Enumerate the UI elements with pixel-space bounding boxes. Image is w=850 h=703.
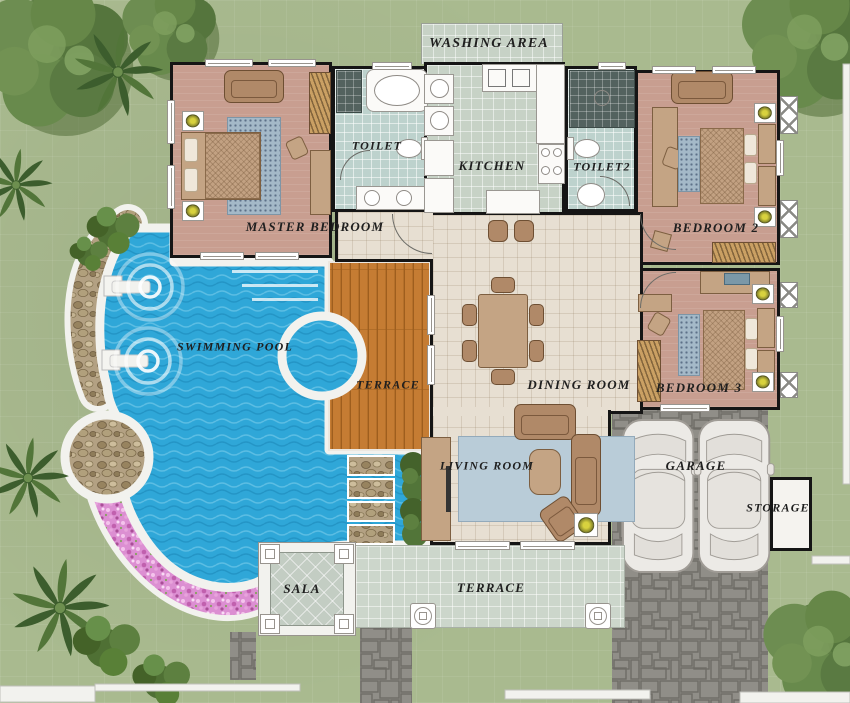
cabinet bbox=[424, 178, 454, 213]
sala-post bbox=[334, 544, 354, 564]
headboard-cabinet bbox=[758, 166, 776, 206]
label-bedroom2: BEDROOM 2 bbox=[673, 220, 759, 236]
wardrobe bbox=[309, 72, 331, 134]
bed-blanket bbox=[205, 133, 260, 199]
terrace-column bbox=[585, 603, 611, 629]
palm-tree bbox=[0, 148, 53, 221]
window bbox=[776, 316, 784, 352]
label-toilet: TOILET bbox=[352, 139, 402, 154]
pillow bbox=[744, 134, 757, 156]
wardrobe bbox=[712, 242, 776, 263]
dryer-drum bbox=[430, 111, 449, 130]
label-garage: GARAGE bbox=[666, 458, 727, 474]
label-sala: SALA bbox=[283, 581, 320, 597]
burner bbox=[553, 148, 562, 157]
label-master-bedroom: MASTER BEDROOM bbox=[246, 219, 385, 235]
dining-table bbox=[478, 294, 528, 368]
pillow bbox=[184, 138, 198, 162]
washer-drum bbox=[430, 79, 449, 98]
label-terrace-south: TERRACE bbox=[457, 580, 525, 596]
bed-bedroom2 bbox=[700, 128, 744, 204]
bathtub-basin bbox=[374, 75, 420, 106]
terrace-column bbox=[410, 603, 436, 629]
label-washing-area: WASHING AREA bbox=[429, 36, 549, 52]
dining-chair bbox=[529, 340, 544, 362]
label-storage: STORAGE bbox=[746, 501, 810, 516]
pillow bbox=[184, 168, 198, 192]
ac-unit bbox=[780, 282, 798, 308]
fridge bbox=[424, 140, 454, 176]
window bbox=[167, 100, 175, 144]
shower bbox=[336, 70, 362, 113]
kitchen-sink bbox=[488, 69, 506, 87]
toilet-bowl bbox=[574, 139, 600, 158]
window bbox=[427, 345, 435, 385]
floor-plan: WASHING AREA TOILET KITCHEN TOILET2 MAST… bbox=[0, 0, 850, 703]
laptop bbox=[724, 273, 750, 285]
bedroom-rug bbox=[678, 314, 700, 376]
car bbox=[694, 420, 774, 572]
window bbox=[255, 252, 299, 260]
pebble-patio bbox=[65, 415, 149, 499]
window bbox=[712, 66, 756, 74]
wall-lamp bbox=[752, 284, 774, 304]
burner bbox=[541, 148, 550, 157]
sofa bbox=[571, 434, 601, 516]
bedroom-rug bbox=[678, 136, 700, 192]
label-bedroom3: BEDROOM 3 bbox=[656, 380, 742, 396]
headboard-cabinet bbox=[757, 308, 775, 348]
dining-chair bbox=[462, 340, 477, 362]
window bbox=[427, 295, 435, 335]
window bbox=[598, 62, 626, 70]
window bbox=[167, 165, 175, 209]
kitchen-sink bbox=[512, 69, 530, 87]
sink-basin bbox=[364, 190, 380, 206]
window bbox=[268, 59, 316, 67]
window bbox=[520, 541, 575, 550]
bed-bedroom3 bbox=[703, 310, 745, 390]
sala-post bbox=[334, 614, 354, 634]
kitchen-island bbox=[486, 190, 540, 214]
shower-head bbox=[594, 90, 610, 106]
window bbox=[776, 140, 784, 176]
ac-unit bbox=[780, 200, 798, 238]
palm-tree bbox=[0, 437, 69, 519]
tree bbox=[763, 591, 850, 703]
window bbox=[652, 66, 696, 74]
spa-circle bbox=[282, 316, 362, 396]
sofa bbox=[224, 70, 284, 103]
wall-lamp bbox=[574, 513, 598, 537]
window bbox=[200, 252, 244, 260]
dining-chair bbox=[529, 304, 544, 326]
ac-unit bbox=[780, 96, 798, 134]
burner bbox=[541, 166, 550, 175]
nightstand-lamp bbox=[182, 201, 204, 221]
shrub bbox=[132, 654, 190, 703]
label-toilet2: TOILET2 bbox=[573, 160, 631, 175]
label-swimming-pool: SWIMMING POOL bbox=[177, 340, 293, 355]
bar-stool bbox=[488, 220, 508, 242]
ac-unit bbox=[780, 372, 798, 398]
label-terrace-pool: TERRACE bbox=[356, 378, 420, 393]
dining-chair bbox=[462, 304, 477, 326]
sofa bbox=[671, 71, 733, 104]
wall-lamp bbox=[752, 372, 774, 392]
dresser bbox=[310, 150, 331, 215]
sala-post bbox=[260, 544, 280, 564]
window bbox=[660, 404, 710, 412]
bar-stool bbox=[514, 220, 534, 242]
label-kitchen: KITCHEN bbox=[459, 158, 526, 174]
kitchen-counter bbox=[536, 64, 565, 144]
dining-chair bbox=[491, 277, 515, 293]
window bbox=[372, 62, 412, 70]
label-living-room: LIVING ROOM bbox=[440, 459, 534, 474]
nightstand-lamp bbox=[182, 111, 204, 131]
burner bbox=[553, 166, 562, 175]
sala-post bbox=[260, 614, 280, 634]
dining-chair bbox=[491, 369, 515, 385]
toilet-tank bbox=[567, 137, 574, 160]
label-dining-room: DINING ROOM bbox=[527, 377, 630, 393]
stone-path bbox=[360, 622, 412, 703]
sink-basin bbox=[396, 190, 412, 206]
window bbox=[205, 59, 253, 67]
headboard-cabinet bbox=[758, 124, 776, 164]
wall-lamp bbox=[754, 103, 776, 123]
pillow bbox=[744, 162, 757, 184]
stone-path-small bbox=[230, 632, 256, 680]
window bbox=[455, 541, 510, 550]
sofa bbox=[514, 404, 576, 440]
